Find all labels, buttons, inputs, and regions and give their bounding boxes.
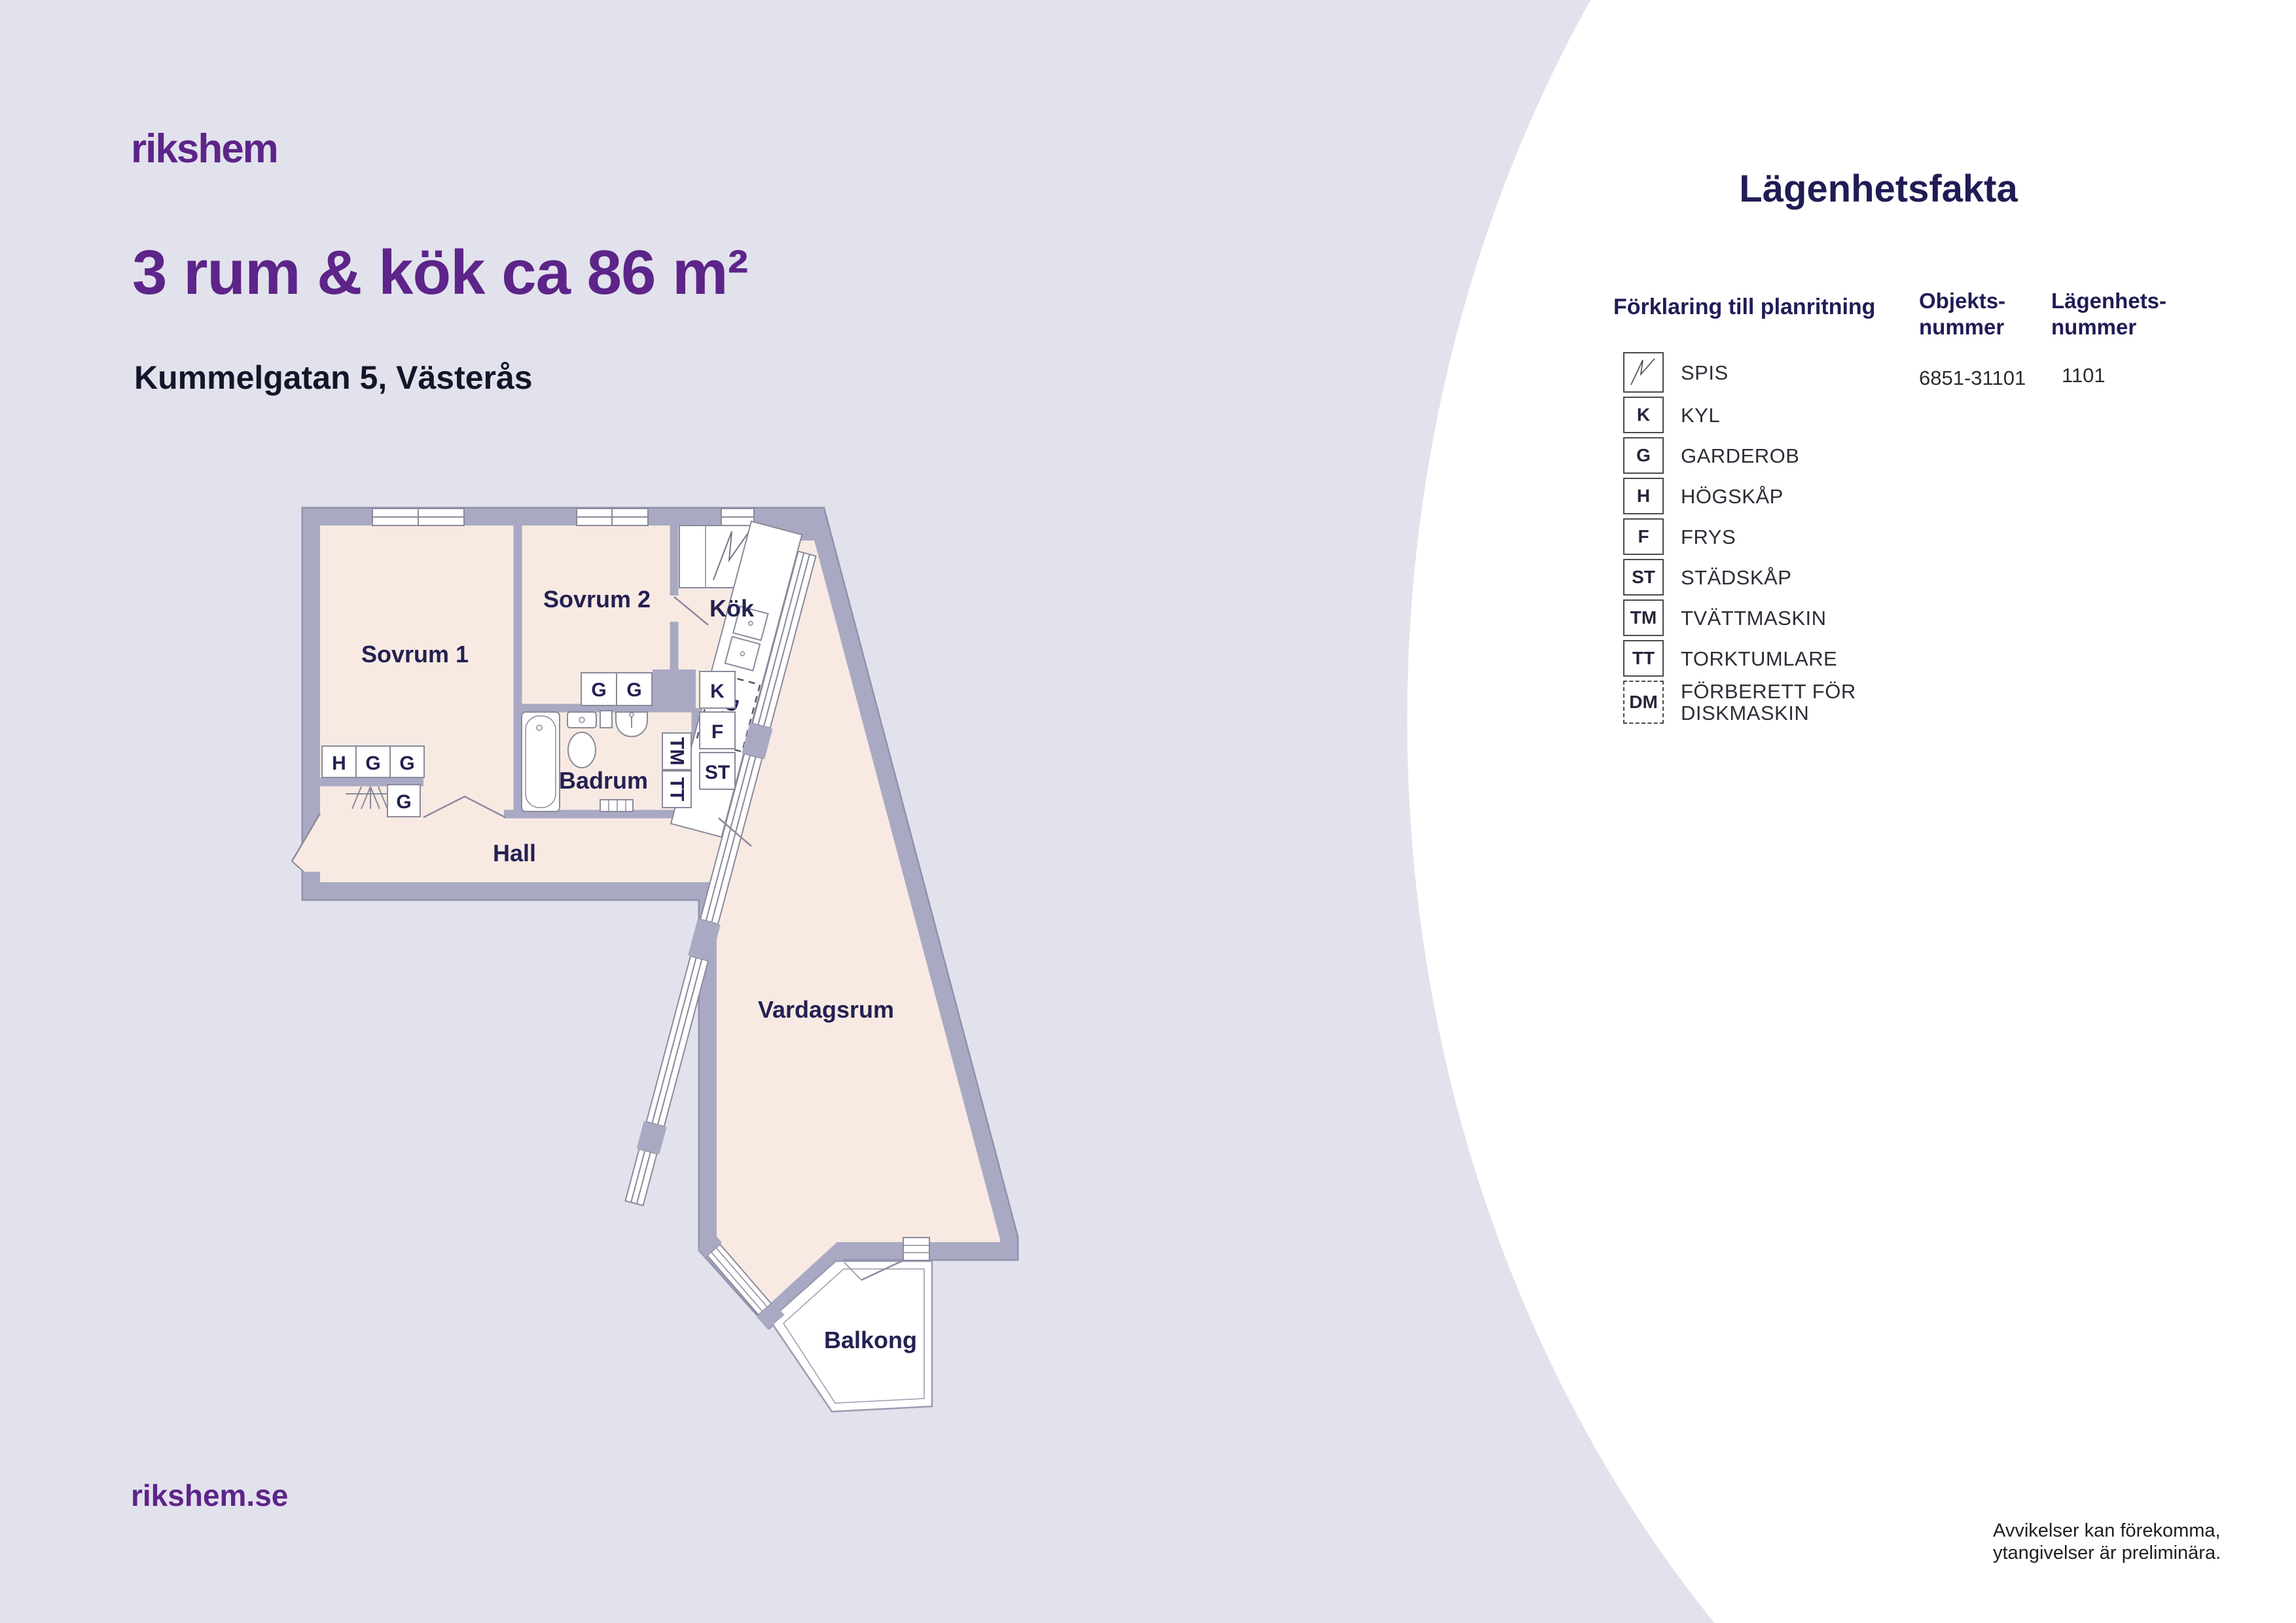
room-label-hall: Hall [493, 840, 536, 866]
torktumlare-marker: TT [666, 777, 688, 802]
radiator [600, 800, 633, 811]
room-label-balkong: Balkong [824, 1327, 917, 1353]
wall-chunk-kitchen-corner [653, 669, 696, 708]
sink [616, 712, 647, 737]
bathtub [522, 712, 560, 811]
garderob-marker: G [591, 679, 606, 701]
floorplan-sheet: rikshem 3 rum & kök ca 86 m² Kummelgatan… [0, 0, 2296, 1623]
room-label-kok: Kök [709, 595, 755, 622]
tvattmaskin-marker: TM [666, 737, 688, 765]
apartment-floor [312, 517, 1009, 1315]
toilet [567, 712, 596, 768]
disclaimer-text: Avvikelser kan förekomma, ytangivelser ä… [1993, 1520, 2221, 1564]
garderob-marker: G [399, 753, 414, 774]
garderob-marker: G [365, 753, 380, 774]
room-label-vardagsrum: Vardagsrum [758, 996, 894, 1023]
frys-marker: F [711, 721, 723, 743]
disclaimer-line2: ytangivelser är preliminära. [1993, 1542, 2221, 1564]
bathroom-shelf [600, 711, 612, 728]
disclaimer-line1: Avvikelser kan förekomma, [1993, 1520, 2221, 1542]
garderob-marker: G [396, 791, 411, 813]
hogskap-marker: H [332, 753, 346, 774]
garderob-marker: G [626, 679, 641, 701]
floor-plan: DM [0, 0, 2296, 1623]
room-label-sovrum2: Sovrum 2 [543, 586, 651, 613]
website-link[interactable]: rikshem.se [131, 1478, 288, 1513]
room-label-badrum: Badrum [559, 767, 648, 794]
room-label-sovrum1: Sovrum 1 [361, 641, 469, 668]
kyl-marker: K [710, 681, 725, 702]
stadskap-marker: ST [705, 762, 730, 783]
